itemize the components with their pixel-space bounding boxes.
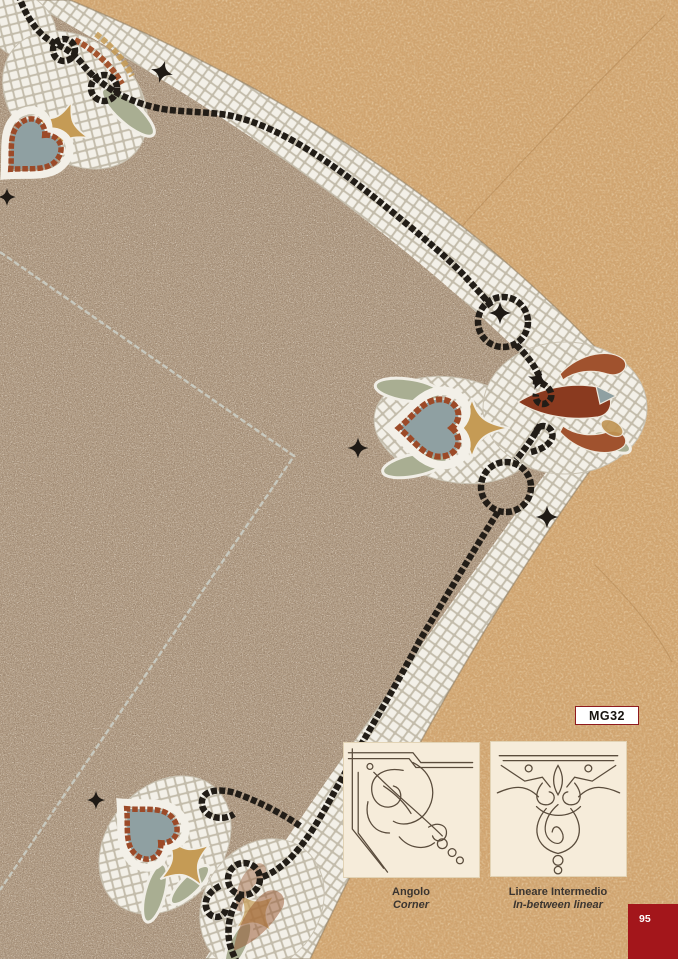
linear-caption: Lineare Intermedio In-between linear [483,886,633,912]
linear-ornament-line-art [491,742,626,876]
page-number-tab: 95 [628,904,678,959]
corner-caption-title: Angolo [336,886,486,899]
linear-piece-drawing [490,741,627,877]
corner-caption-subtitle: Corner [336,899,486,912]
catalog-page: MG32 [0,0,678,959]
page-number: 95 [639,913,651,925]
linear-caption-title: Lineare Intermedio [483,886,633,899]
linear-caption-subtitle: In-between linear [483,899,633,912]
product-code-badge: MG32 [575,706,639,725]
product-code-label: MG32 [589,709,625,723]
corner-piece-drawing [343,742,480,878]
corner-caption: Angolo Corner [336,886,486,912]
corner-ornament-line-art [344,743,479,877]
